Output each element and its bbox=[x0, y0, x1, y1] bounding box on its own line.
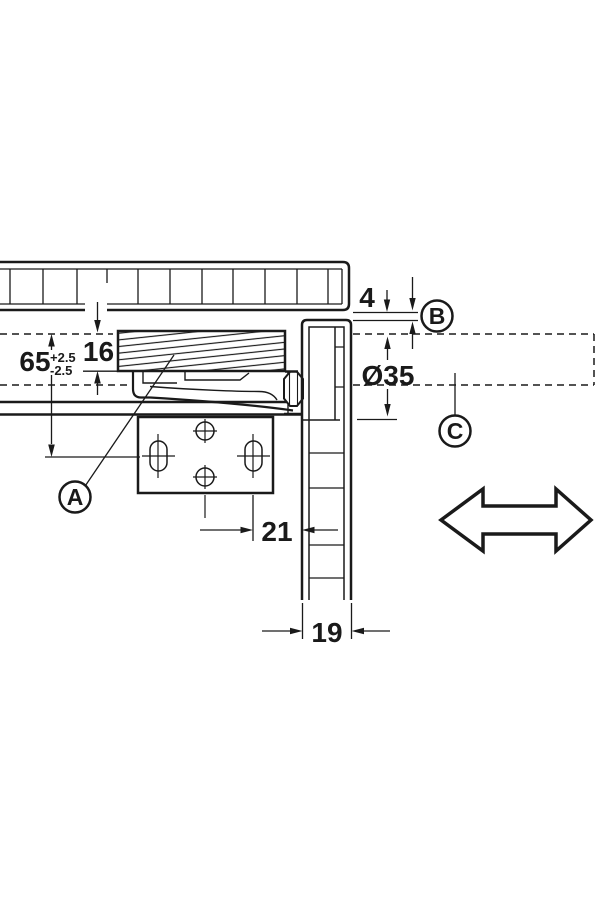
callout-c-label: C bbox=[447, 418, 464, 444]
dim-16-value: 16 bbox=[83, 336, 114, 367]
dim-19-value: 19 bbox=[311, 617, 342, 648]
dim-35-value: Ø35 bbox=[362, 360, 415, 391]
hex-screw-body bbox=[284, 372, 303, 406]
dim-4-value: 4 bbox=[359, 282, 375, 313]
wood-block-outline bbox=[118, 331, 285, 371]
callout-b: B bbox=[422, 301, 453, 332]
dim-21-value: 21 bbox=[261, 516, 292, 547]
hex-screw bbox=[284, 372, 303, 406]
dim-65-value: 65 bbox=[19, 346, 50, 377]
hinge-diagram: 65 +2.5 -2.5 16 4 Ø35 21 bbox=[0, 0, 600, 900]
callout-b-label: B bbox=[429, 303, 446, 329]
dim-65-tol-minus: -2.5 bbox=[50, 363, 72, 378]
callout-a-label: A bbox=[67, 484, 84, 510]
canvas-background bbox=[0, 0, 600, 900]
technical-drawing-page: 65 +2.5 -2.5 16 4 Ø35 21 bbox=[0, 0, 600, 900]
wood-block bbox=[118, 331, 285, 371]
